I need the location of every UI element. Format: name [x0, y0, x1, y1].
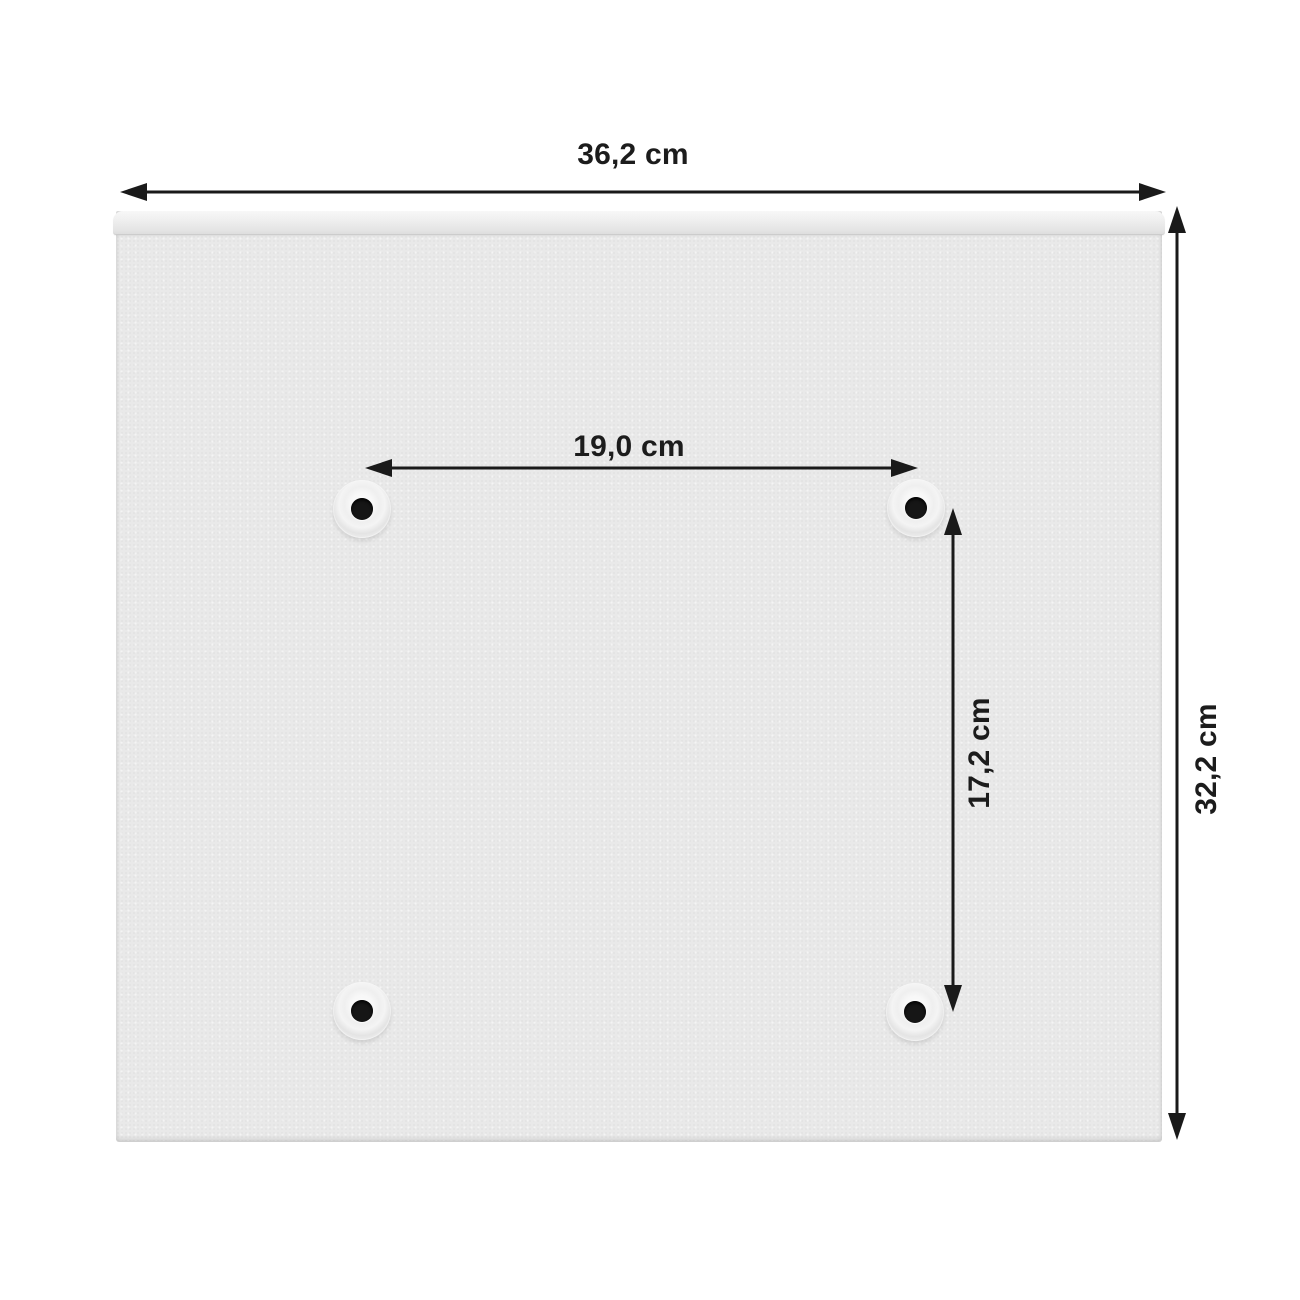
- mailbox-back-panel: 19,0 cm 17,2 cm: [116, 211, 1162, 1142]
- screw-hole-icon: [905, 497, 927, 519]
- mounting-hole-bottom-right: [886, 983, 944, 1041]
- height-dimension-arrow: [1163, 206, 1191, 1140]
- arrowhead-right-icon: [1139, 183, 1166, 201]
- mounting-hole-top-right: [887, 479, 945, 537]
- product-dimension-diagram: 36,2 cm 32,2 cm 19,0 cm: [0, 0, 1300, 1300]
- arrowhead-down-icon: [944, 985, 962, 1012]
- arrowhead-right-icon: [891, 459, 918, 477]
- width-dimension-line: [143, 191, 1143, 194]
- hole-spacing-horizontal-line: [388, 467, 895, 470]
- width-dimension-label: 36,2 cm: [553, 138, 713, 172]
- panel-top-rail: [113, 211, 1165, 235]
- screw-hole-icon: [351, 1000, 373, 1022]
- hole-spacing-horizontal-label: 19,0 cm: [549, 430, 709, 464]
- screw-hole-icon: [351, 498, 373, 520]
- arrowhead-down-icon: [1168, 1113, 1186, 1140]
- height-dimension-line: [1176, 229, 1179, 1117]
- hole-spacing-vertical-line: [952, 531, 955, 989]
- mounting-hole-top-left: [333, 480, 391, 538]
- screw-hole-icon: [904, 1001, 926, 1023]
- width-dimension-arrow: [120, 178, 1166, 206]
- height-dimension-label: 32,2 cm: [1190, 703, 1224, 814]
- mounting-hole-bottom-left: [333, 982, 391, 1040]
- hole-spacing-vertical-label: 17,2 cm: [963, 697, 997, 808]
